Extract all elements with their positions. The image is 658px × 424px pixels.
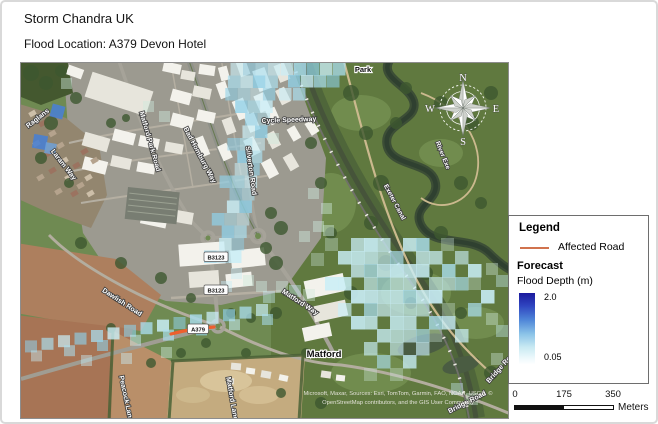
scale-tick-175: 175 [556,389,572,400]
route-badge-a379: A379 [188,324,209,334]
affected-road-label: Affected Road [558,241,624,253]
solar-roof-building [125,187,180,224]
forecast-layer-title: Forecast [517,260,563,272]
scale-unit-label: Meters [618,402,649,413]
map-attribution-line2: OpenStreetMap contributors, and the GIS … [322,400,474,406]
route-badge-b3123: B3123 [204,252,228,262]
scale-tick-350: 350 [605,389,621,400]
map-view[interactable]: B3123 B3123 A379 Park Raglans Laram Way … [20,62,509,419]
svg-text:B3123: B3123 [207,288,225,294]
flood-location-subtitle: Flood Location: A379 Devon Hotel [24,37,206,51]
satellite-map[interactable]: B3123 B3123 A379 Park Raglans Laram Way … [21,63,508,418]
legend-title: Legend [519,222,560,234]
compass-e: E [493,104,499,115]
scale-tick-0: 0 [512,389,517,400]
affected-road-swatch [520,247,549,249]
flood-depth-color-ramp [519,293,535,364]
svg-text:A379: A379 [191,327,206,333]
page-title: Storm Chandra UK [24,11,134,26]
flood-depth-label: Flood Depth (m) [517,275,593,287]
dirt-patch [239,386,279,404]
flood-depth-min: 0.05 [544,352,562,362]
compass-s: S [460,137,466,148]
dirt-patch [176,387,210,403]
route-badge-b3123: B3123 [204,285,228,295]
legend-panel: Legend Affected Road Forecast Flood Dept… [508,215,649,384]
svg-text:B3123: B3123 [207,255,225,261]
report-card: Storm Chandra UK Flood Location: A379 De… [0,0,658,424]
scale-bar-graphic [514,405,614,410]
compass-w: W [425,104,435,115]
matford-place-label: Matford [307,349,342,360]
flood-depth-max: 2.0 [544,292,557,302]
map-attribution-line1: Microsoft, Maxar, Sources: Esri, TomTom,… [303,390,493,397]
compass-n: N [459,73,467,84]
scale-bar: 0 175 350 Meters [508,387,658,419]
park-label: Park [355,65,372,74]
